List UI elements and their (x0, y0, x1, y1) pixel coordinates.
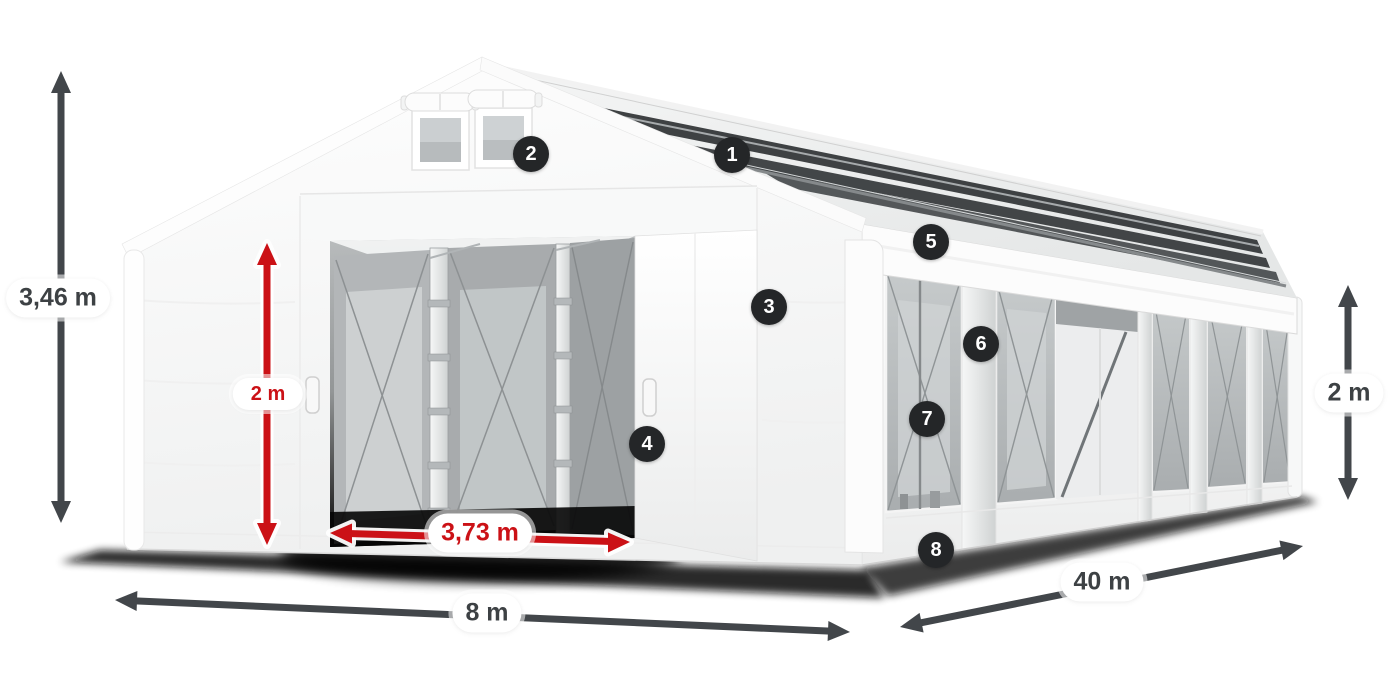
callout-badge-8[interactable]: 8 (918, 532, 954, 568)
side-entrance-bay (1056, 289, 1138, 499)
callout-badge-5[interactable]: 5 (913, 224, 949, 260)
dimension-label-side-length: 40 m (1061, 563, 1144, 602)
left-door-handle (306, 377, 319, 413)
callout-badge-6[interactable]: 6 (963, 326, 999, 362)
window-roller-blinds (401, 90, 542, 111)
dimension-label-side-wall-height: 2 m (1314, 374, 1383, 413)
callout-badge-4[interactable]: 4 (629, 426, 665, 462)
callout-badge-3[interactable]: 3 (751, 289, 787, 325)
tent-dimension-diagram: 3,46 m 2 m 3,73 m 8 m 40 m 2 m 1 2 3 4 5… (0, 0, 1400, 700)
dimension-label-door-width: 3,73 m (428, 514, 532, 553)
callout-badge-7[interactable]: 7 (909, 401, 945, 437)
dimension-label-door-height: 2 m (233, 378, 303, 410)
callout-badge-1[interactable]: 1 (714, 137, 750, 173)
dimension-label-front-width: 8 m (452, 594, 521, 633)
right-door-handle (643, 379, 656, 416)
front-door-opening (330, 236, 635, 547)
tent-illustration (0, 0, 1400, 700)
dimension-label-total-height: 3,46 m (6, 279, 110, 318)
callout-badge-2[interactable]: 2 (513, 136, 549, 172)
